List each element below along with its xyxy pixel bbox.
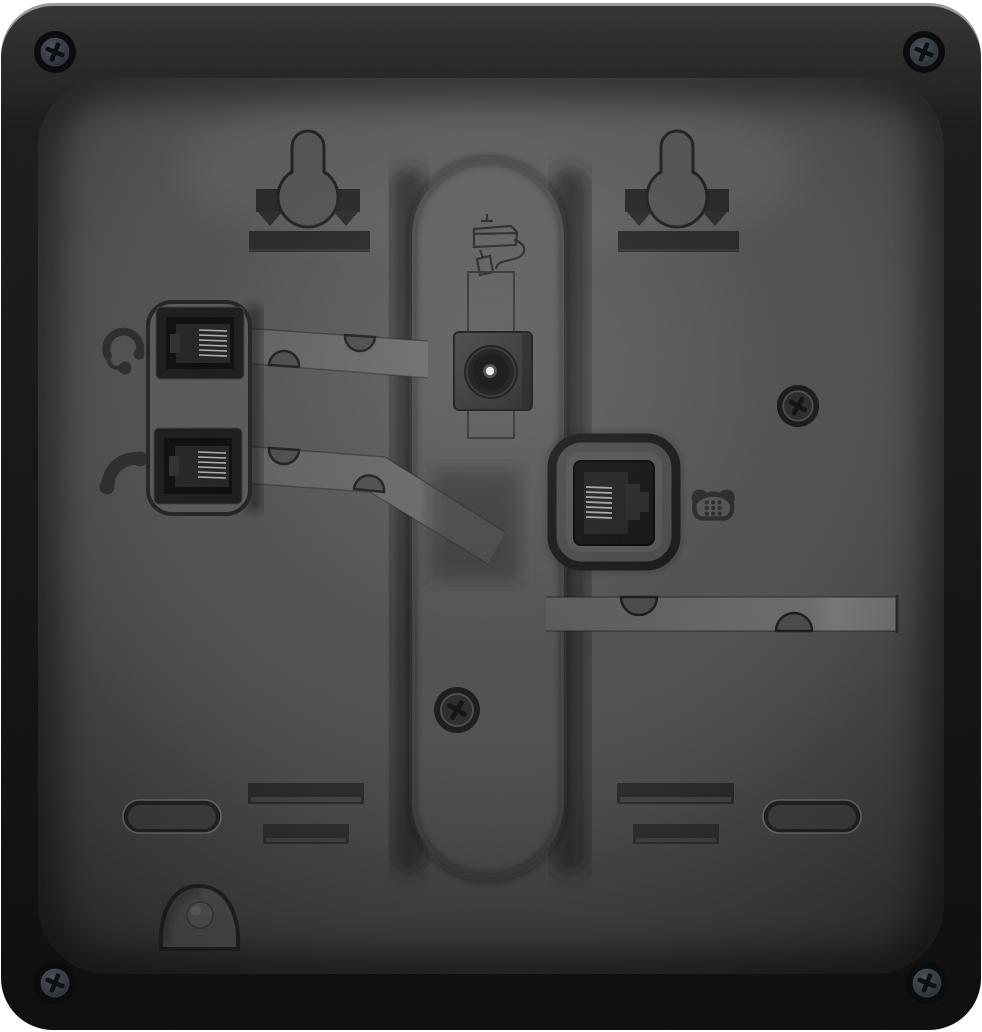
photo-grain <box>0 0 982 1032</box>
phone-rear-svg <box>0 0 982 1032</box>
phone-rear-photo <box>0 0 982 1032</box>
